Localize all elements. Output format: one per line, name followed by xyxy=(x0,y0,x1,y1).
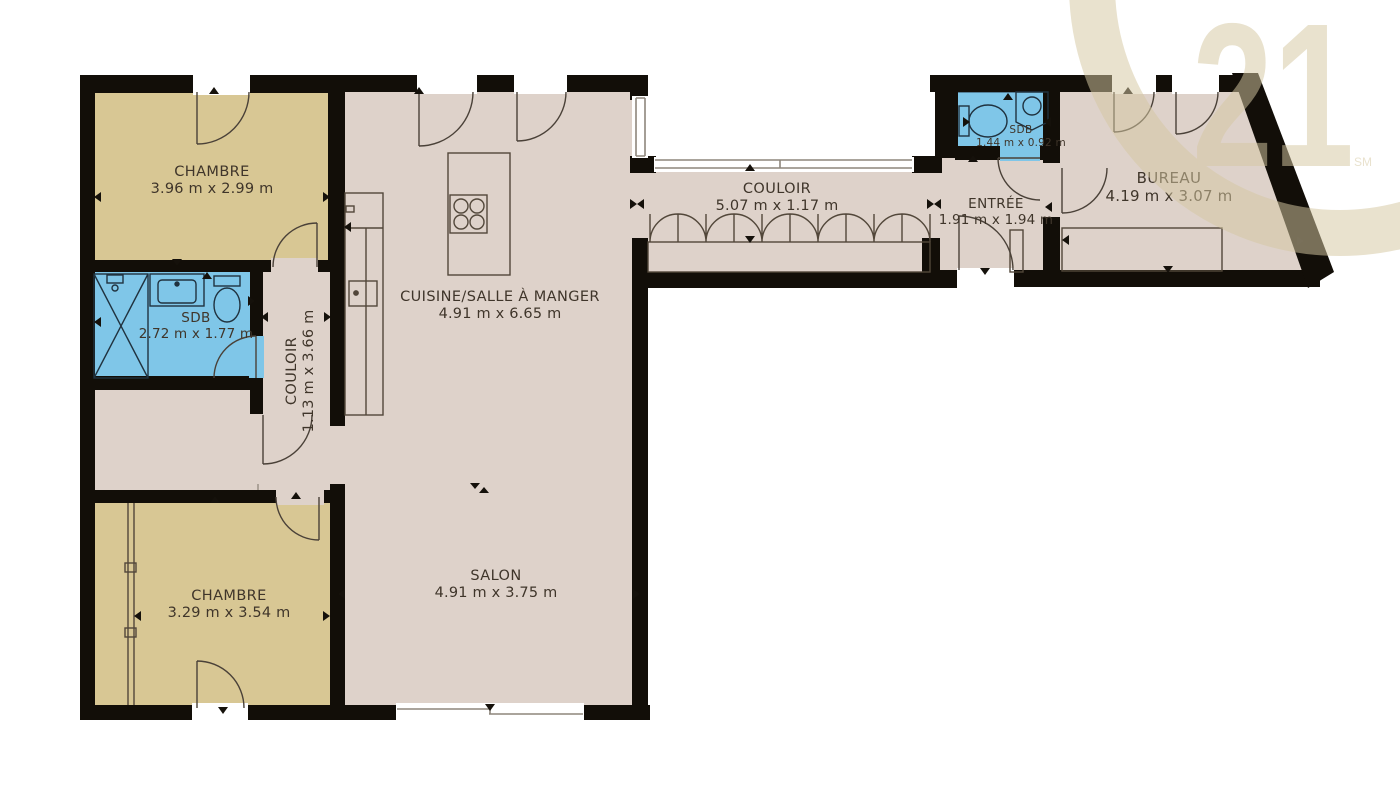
room-dressing-floor xyxy=(88,380,258,505)
label-entree: ENTRÉE 1.91 m x 1.94 m xyxy=(939,196,1054,228)
wall xyxy=(935,88,958,158)
room-name: SALON xyxy=(435,568,558,585)
opening xyxy=(329,426,346,484)
label-salon: SALON 4.91 m x 3.75 m xyxy=(435,568,558,602)
label-cuisine: CUISINE/SALLE À MANGER 4.91 m x 6.65 m xyxy=(400,289,600,323)
opening xyxy=(1112,73,1156,94)
opening xyxy=(249,414,264,484)
wall xyxy=(328,88,345,268)
room-dims: 1.13 m x 3.66 m xyxy=(301,310,318,433)
room-cuisine-salon-floor xyxy=(332,88,642,713)
wall xyxy=(80,75,95,720)
label-chambre2: CHAMBRE 3.29 m x 3.54 m xyxy=(168,588,291,622)
wall xyxy=(912,156,942,173)
wall xyxy=(632,238,648,720)
floor-plan-page: CHAMBRE 3.96 m x 2.99 m SDB 2.72 m x 1.7… xyxy=(0,0,1400,800)
label-chambre1: CHAMBRE 3.96 m x 2.99 m xyxy=(151,164,274,198)
room-dims: 2.72 m x 1.77 m xyxy=(139,326,254,342)
room-name: ENTRÉE xyxy=(939,196,1054,212)
room-dims: 4.91 m x 3.75 m xyxy=(435,585,558,602)
label-couloir2: COULOIR 5.07 m x 1.17 m xyxy=(716,181,839,215)
room-name: CHAMBRE xyxy=(151,164,274,181)
opening xyxy=(417,73,477,94)
faucet-icon xyxy=(175,282,179,286)
room-name: SDB xyxy=(976,124,1066,137)
room-dims: 5.07 m x 1.17 m xyxy=(716,198,839,215)
opening xyxy=(192,703,248,722)
room-name: CUISINE/SALLE À MANGER xyxy=(400,289,600,306)
opening xyxy=(193,73,250,95)
room-name: CHAMBRE xyxy=(168,588,291,605)
opening xyxy=(1172,73,1219,94)
room-dims: 4.91 m x 6.65 m xyxy=(400,306,600,323)
opening xyxy=(271,258,318,274)
room-name: BUREAU xyxy=(1106,169,1233,187)
label-sdb2: SDB 1.44 m x 0.92 m xyxy=(976,124,1066,150)
wall xyxy=(332,75,648,92)
label-sdb1: SDB 2.72 m x 1.77 m xyxy=(139,310,254,342)
floor-plan-drawing xyxy=(0,0,1400,800)
room-name: COULOIR xyxy=(284,310,301,433)
wall xyxy=(330,490,345,720)
opening xyxy=(276,488,324,505)
room-name: SDB xyxy=(139,310,254,326)
opening xyxy=(514,73,567,94)
faucet-icon xyxy=(354,291,358,295)
room-name: COULOIR xyxy=(716,181,839,198)
wall xyxy=(330,268,345,428)
label-couloir1: COULOIR 1.13 m x 3.66 m xyxy=(284,310,318,433)
wall xyxy=(630,156,656,173)
room-dims: 3.29 m x 3.54 m xyxy=(168,605,291,622)
room-dims: 1.91 m x 1.94 m xyxy=(939,212,1054,228)
wall xyxy=(632,272,962,288)
label-bureau: BUREAU 4.19 m x 3.07 m xyxy=(1106,169,1233,205)
room-dims: 4.19 m x 3.07 m xyxy=(1106,187,1233,205)
room-dims: 3.96 m x 2.99 m xyxy=(151,181,274,198)
room-dims: 1.44 m x 0.92 m xyxy=(976,137,1066,150)
